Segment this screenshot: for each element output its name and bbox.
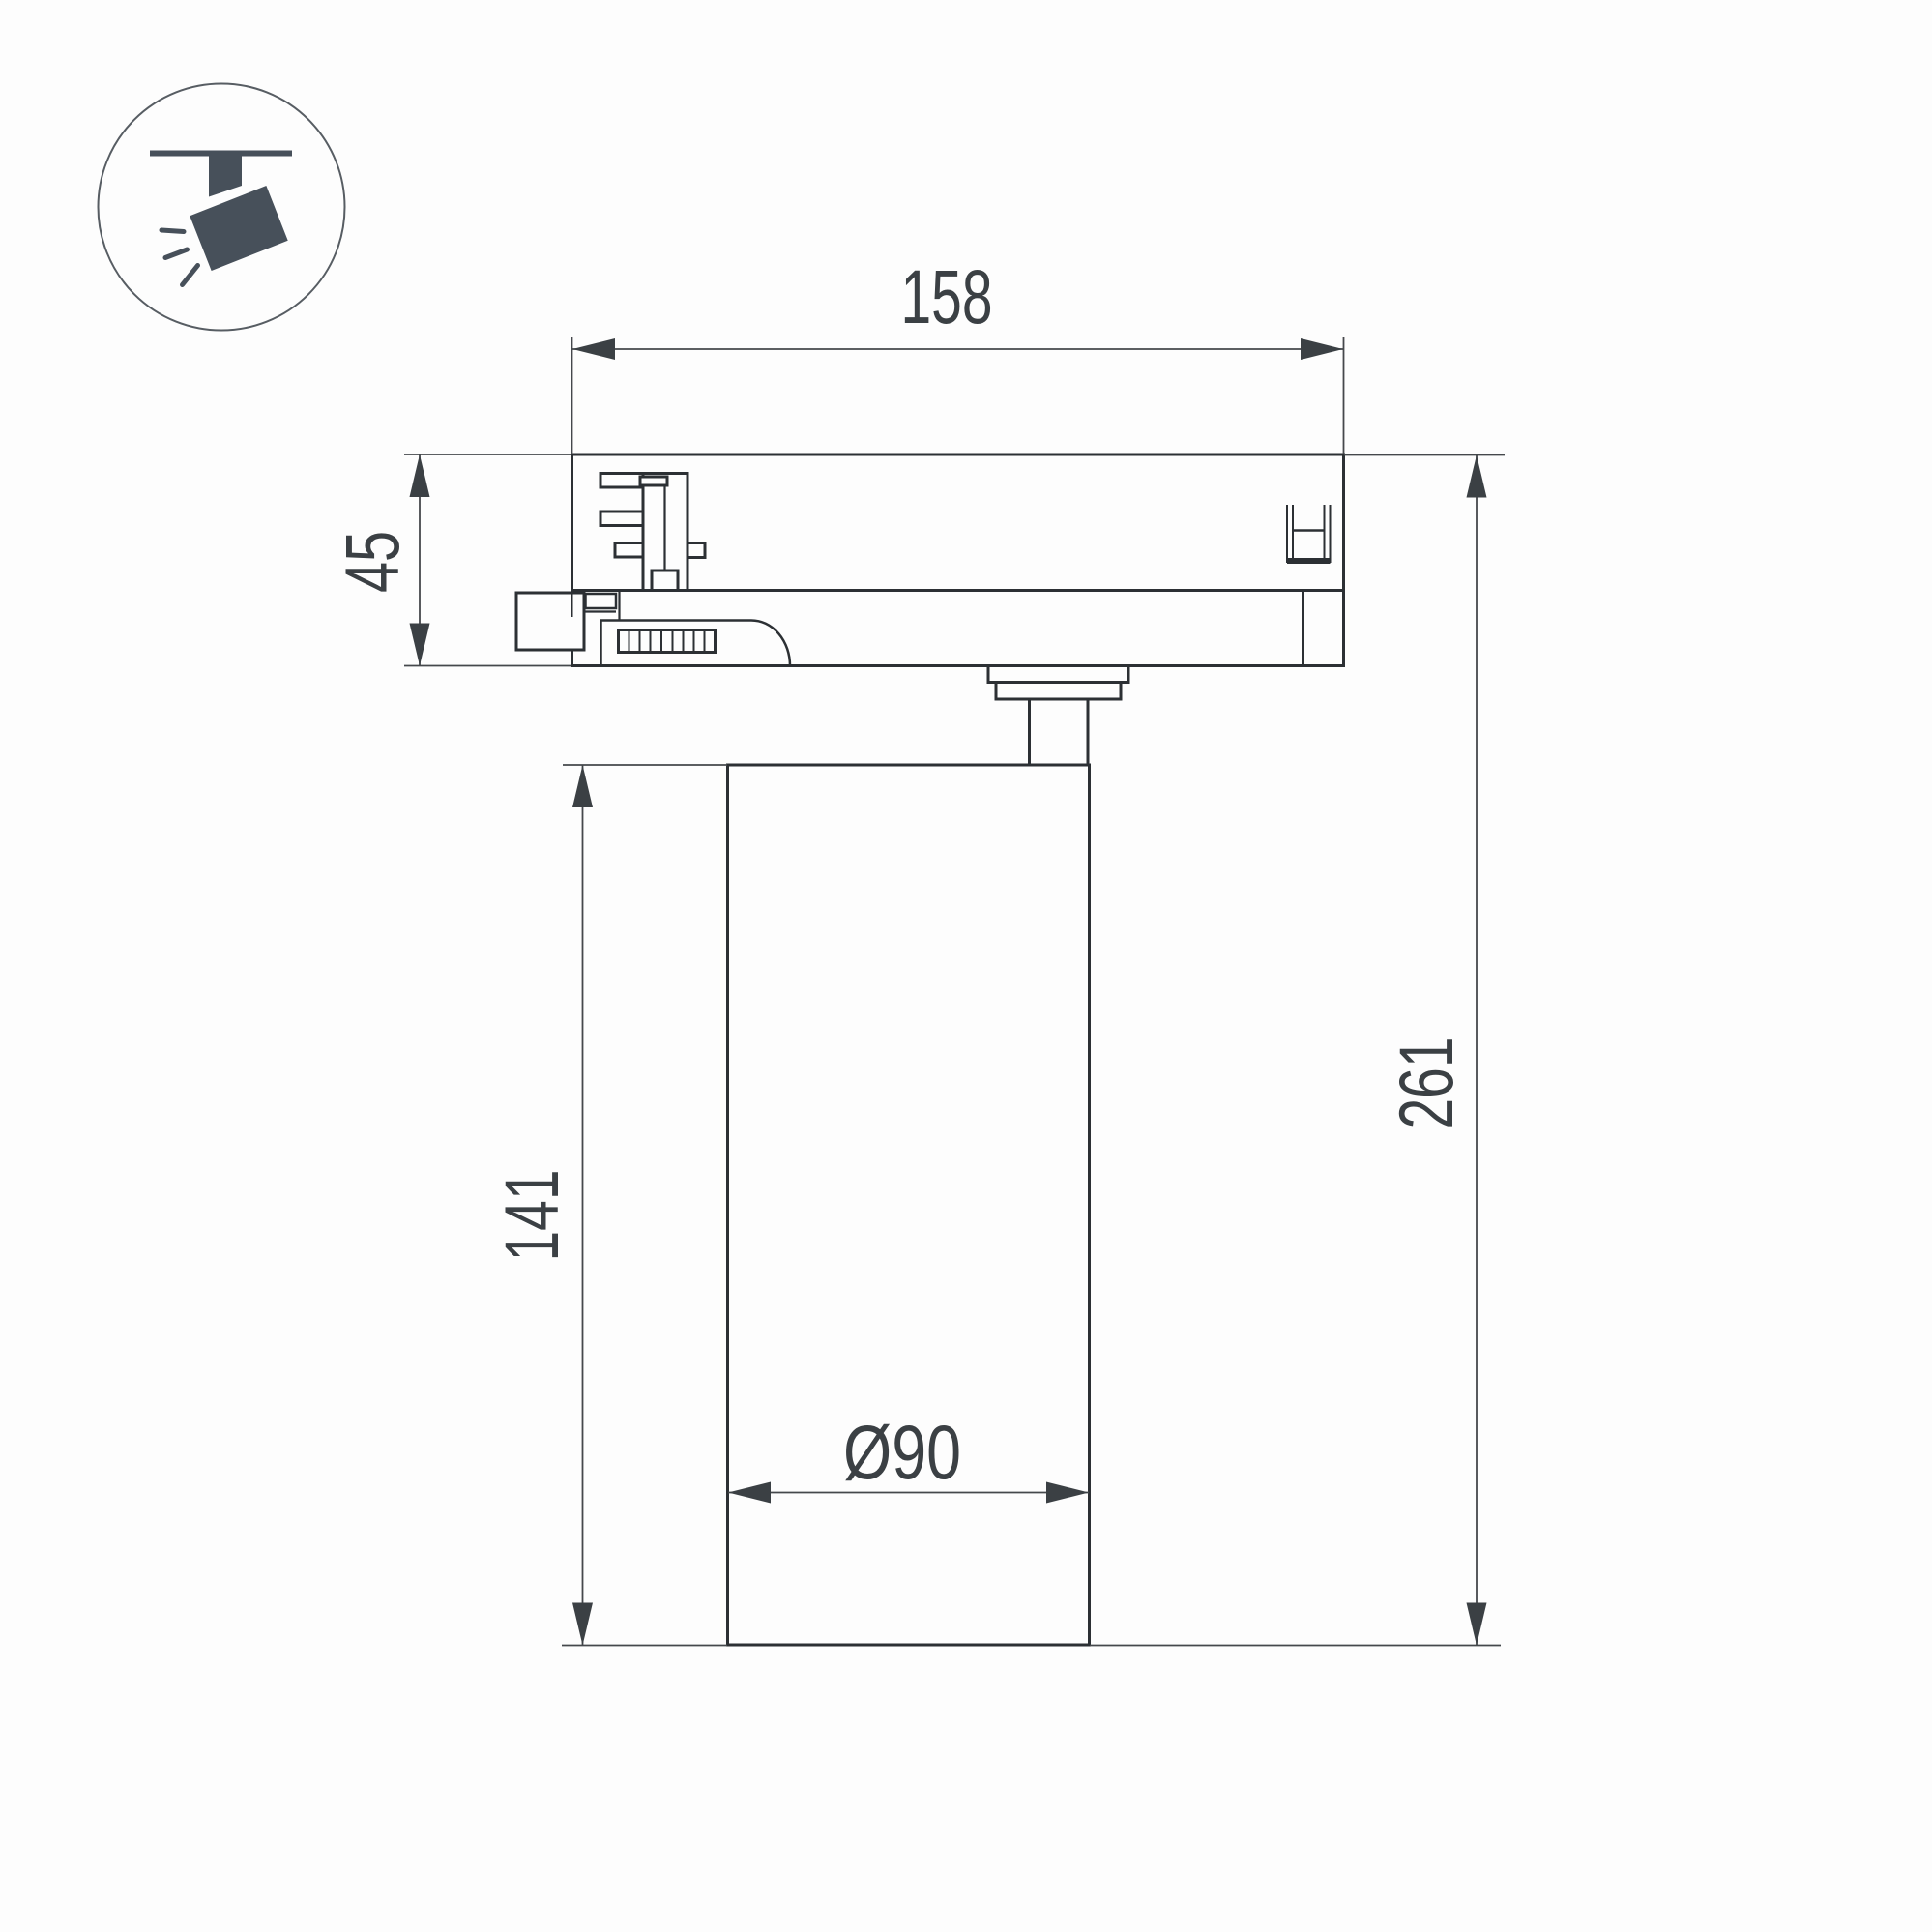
- svg-text:261: 261: [1383, 1038, 1469, 1129]
- svg-text:141: 141: [488, 1170, 574, 1262]
- svg-text:45: 45: [329, 531, 415, 593]
- svg-text:158: 158: [901, 253, 993, 339]
- svg-text:Ø90: Ø90: [843, 1409, 961, 1495]
